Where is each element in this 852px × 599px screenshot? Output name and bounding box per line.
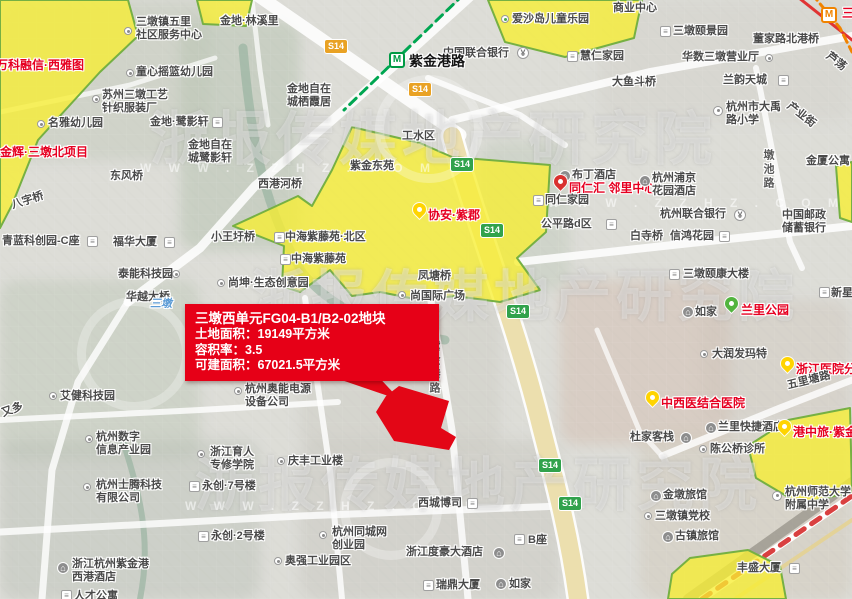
parcel-buildable-area: 可建面积：67021.5平方米 (195, 358, 429, 374)
parcel-info-callout: 三墩西单元FG04-B1/B2-02地块 土地面积：19149平方米 容积率：3… (185, 304, 439, 381)
parcel-land-area: 土地面积：19149平方米 (195, 327, 429, 343)
parcel-title: 三墩西单元FG04-B1/B2-02地块 (195, 310, 429, 327)
map-canvas[interactable]: 浙报传媒地产研究院浙报传媒地产研究院浙报传媒地产研究院W W W . Z Z H… (0, 0, 852, 599)
highlight-layer (0, 0, 852, 599)
parcel-plot-ratio: 容积率：3.5 (195, 343, 429, 359)
